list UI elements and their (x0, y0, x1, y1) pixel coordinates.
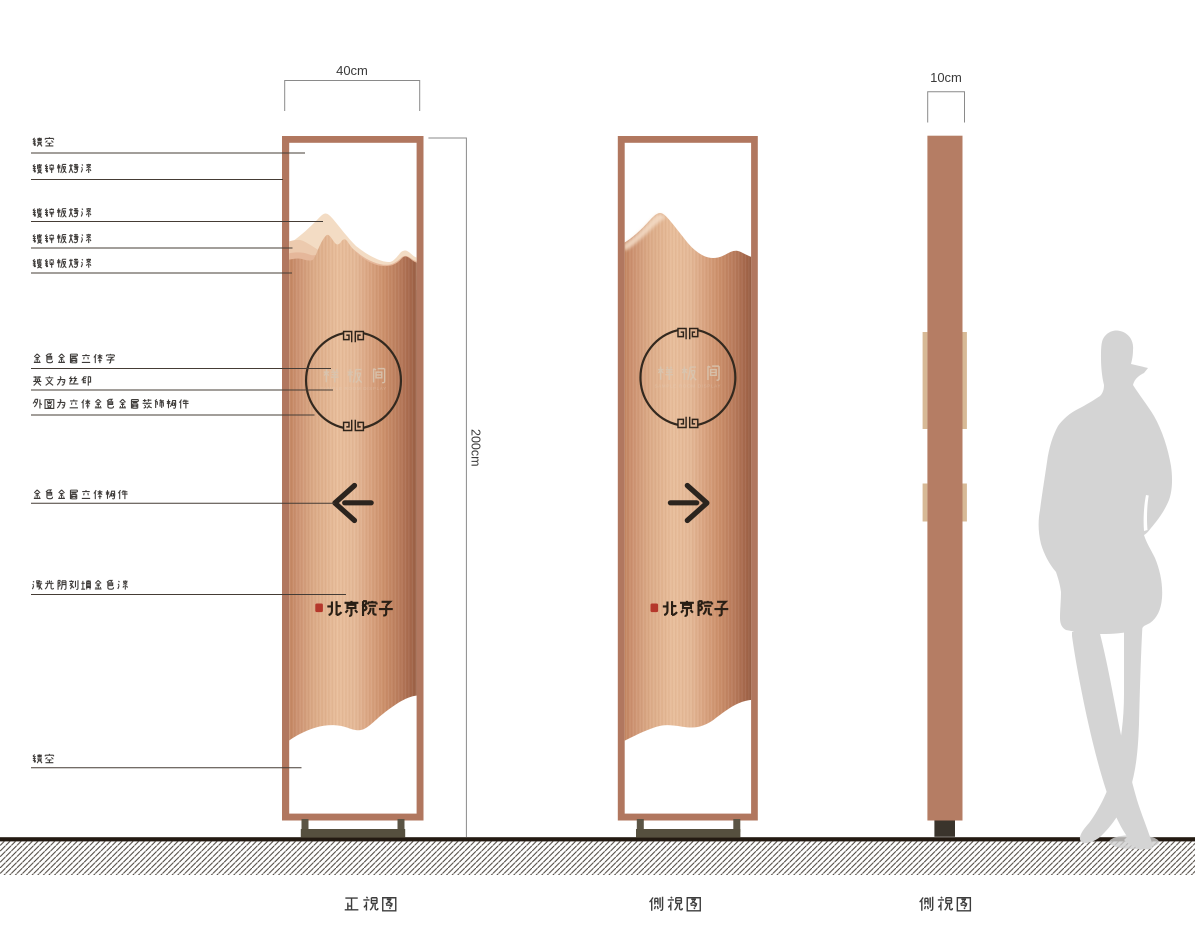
svg-text:200cm: 200cm (469, 429, 483, 467)
svg-text:SAMPLE ROOM DISPLAY: SAMPLE ROOM DISPLAY (655, 384, 722, 389)
svg-text:40cm: 40cm (336, 63, 368, 78)
svg-text:10cm: 10cm (930, 70, 962, 85)
